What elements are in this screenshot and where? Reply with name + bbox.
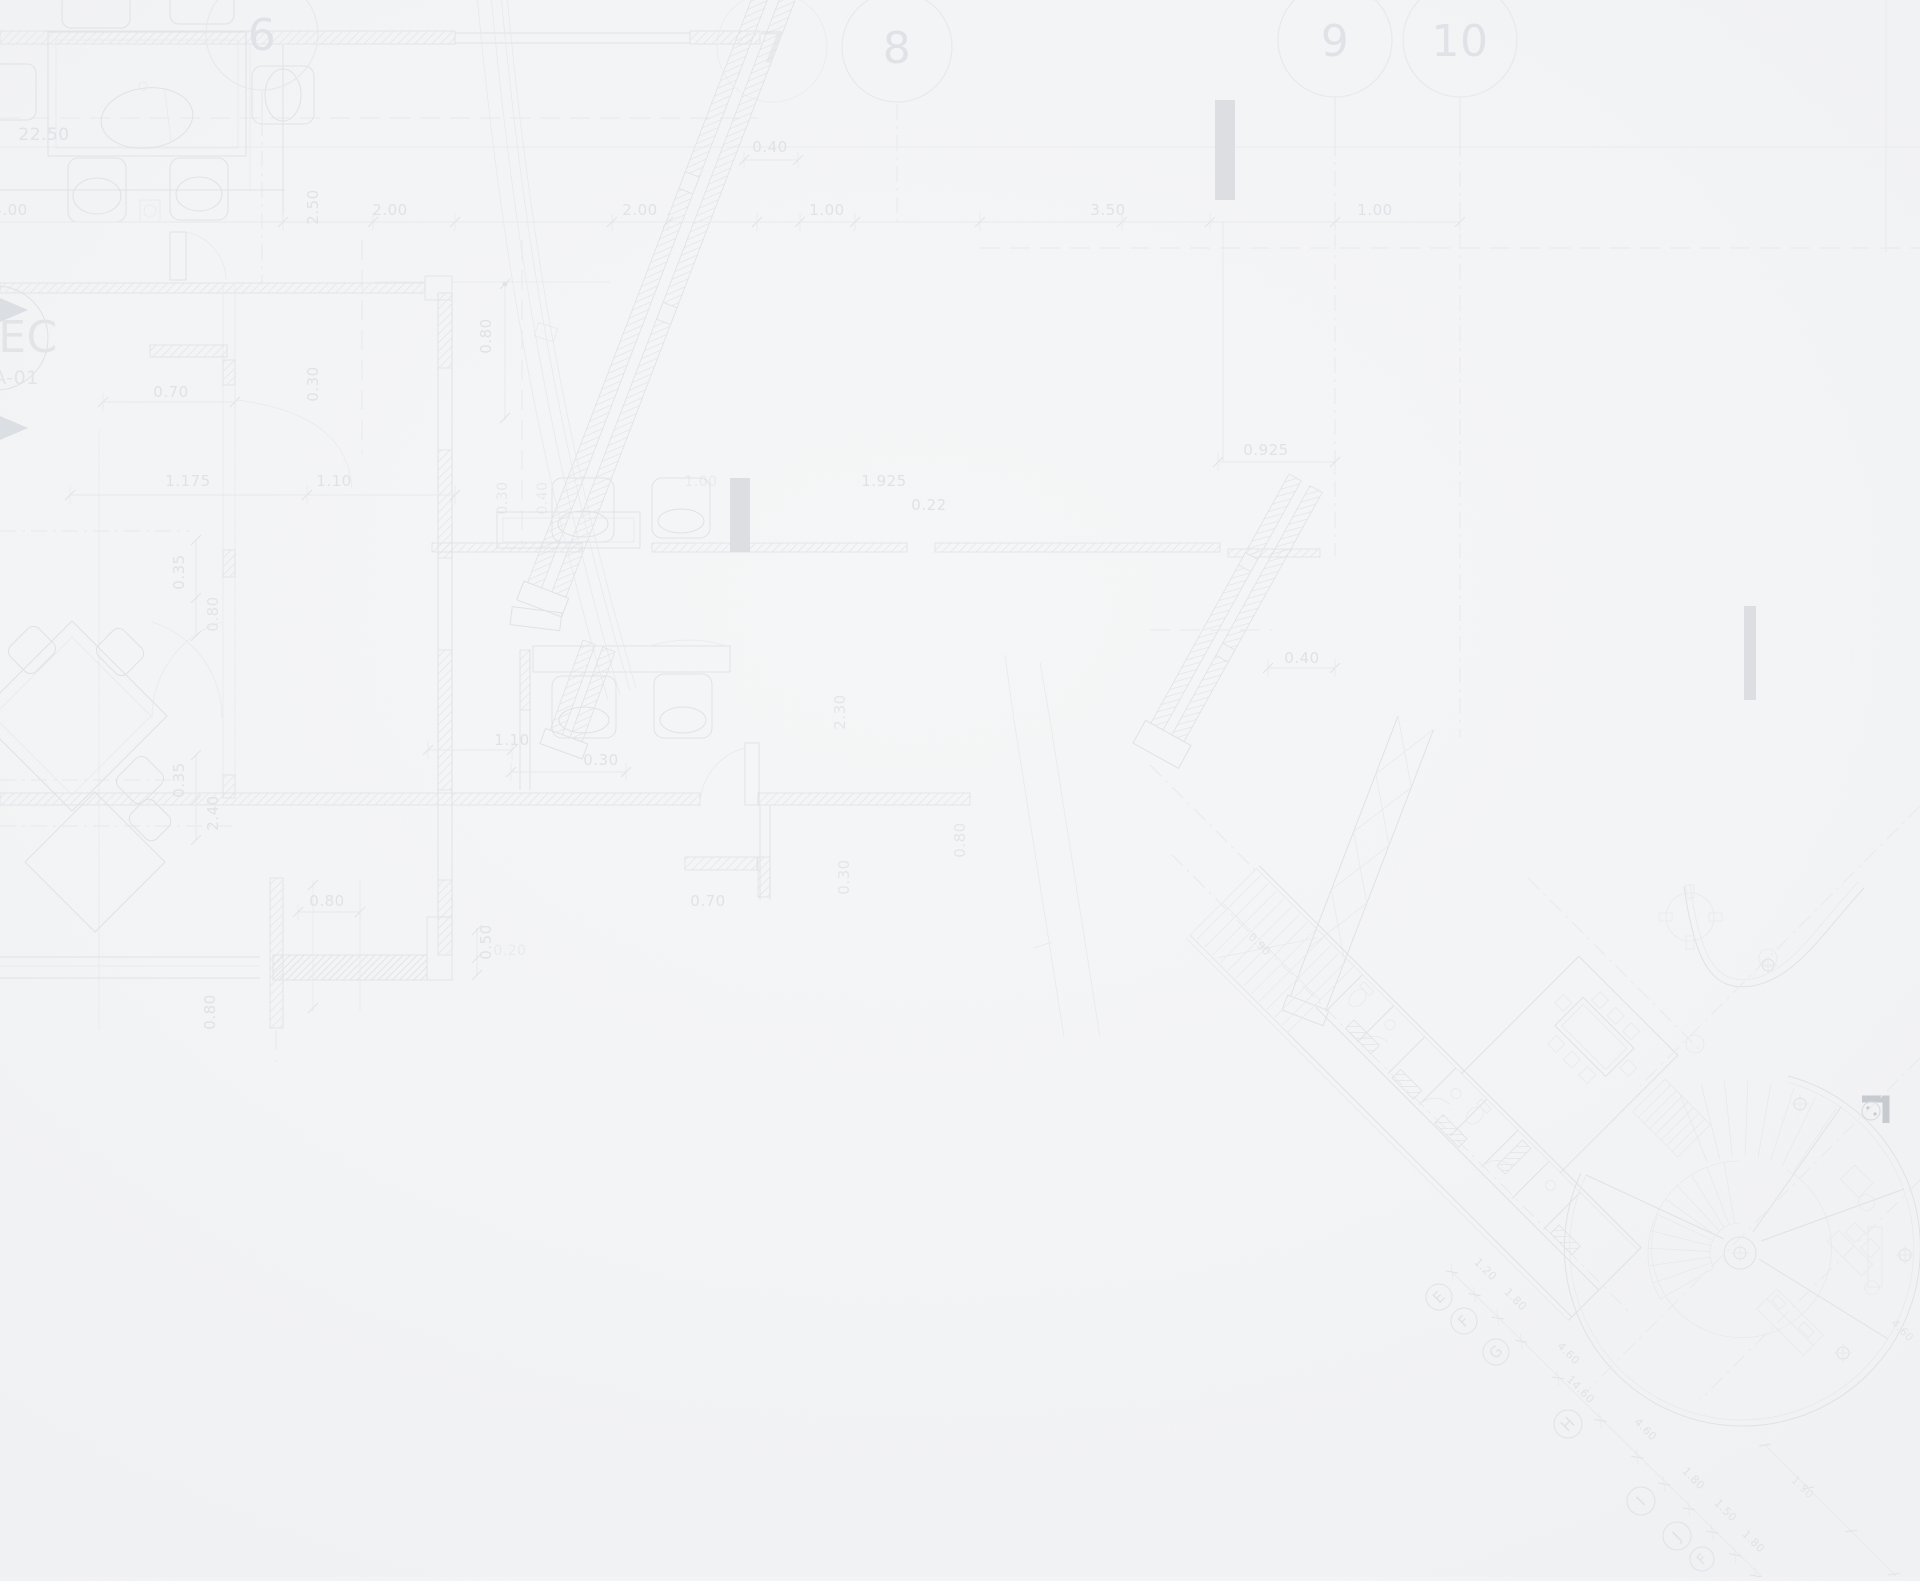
dimension-label: 0.40: [535, 481, 551, 514]
grid-bubble-diagonal: E: [1426, 1284, 1452, 1310]
dimension-label: 14.60: [1564, 1373, 1597, 1406]
grid-bubble-top: 8: [842, 0, 952, 102]
dimension-label: 0.40: [752, 138, 787, 156]
svg-text:9: 9: [1321, 16, 1350, 67]
grid-bubble-diagonal: J: [1663, 1522, 1691, 1550]
dimension-label: 0.80: [201, 994, 219, 1029]
dimension-label: 0.925: [1243, 441, 1288, 459]
svg-text:6: 6: [248, 10, 277, 61]
ramp-1-continuation: [1005, 655, 1100, 1037]
svg-text:H: H: [1557, 1413, 1579, 1435]
dimension-label: 4.60: [1555, 1340, 1583, 1368]
svg-text:F: F: [1694, 1551, 1711, 1568]
dimension-label: 1.20: [1472, 1256, 1500, 1284]
site-elements: [1528, 806, 1920, 1400]
grid-bubble-top: 6: [206, 0, 318, 90]
dimension-label: 22.50: [18, 125, 69, 145]
wing-fixtures: [1330, 982, 1563, 1215]
grid-bubbles: 678910EFGHIJF: [206, 0, 1714, 1571]
dimension-label: 0.80: [951, 822, 969, 857]
grid-drop-lines: [262, 90, 1460, 738]
dimension-label: 1.00: [809, 201, 844, 219]
svg-text:7: 7: [758, 23, 787, 74]
column-marker: [1834, 1344, 1852, 1362]
dimension-label: 0.80: [309, 892, 344, 910]
dimension-label: 0.30: [835, 859, 853, 894]
reference-lines: [0, 0, 1920, 1030]
section-marker-code: EC: [0, 312, 58, 363]
svg-text:F: F: [1454, 1311, 1473, 1330]
grid-bubble-diagonal: G: [1483, 1339, 1509, 1365]
grid-bubble-top: 9: [1278, 0, 1392, 97]
pavilion-seat: [1836, 1165, 1885, 1214]
dimension-label: 2.50: [304, 189, 322, 224]
grid-bubble-diagonal: I: [1627, 1487, 1655, 1515]
site-grid-diagonals: [1528, 806, 1920, 1400]
svg-text:E: E: [1429, 1287, 1449, 1307]
circular-pavilion: [1564, 1076, 1920, 1426]
dimension-label: 2.00: [372, 201, 407, 219]
dimension-label: 0.30: [304, 366, 322, 401]
dimension-label: 1.10: [316, 472, 351, 490]
ramp-hatched-3: [1133, 471, 1329, 768]
dimension-label: 1.80: [1680, 1465, 1708, 1493]
dimension-label: 0.35: [170, 554, 188, 589]
truss-3: [1282, 715, 1436, 1026]
wing-branch-dining: [1461, 956, 1677, 1172]
svg-text:10: 10: [1432, 16, 1489, 67]
dimension-label: 2.40: [204, 795, 222, 830]
section-marker-arrow-bottom: [0, 416, 28, 440]
column-marker: [1759, 956, 1777, 974]
svg-text:I: I: [1632, 1492, 1649, 1509]
dimension-label: 0.40: [1284, 649, 1319, 667]
dimension-label: 1.925: [861, 472, 906, 490]
dimension-label: 0.22: [911, 496, 946, 514]
dimension-label: 1.00: [684, 474, 717, 490]
dimension-label: 1.175: [165, 472, 210, 490]
svg-text:8: 8: [883, 23, 912, 74]
dimension-lines: [0, 160, 1897, 1577]
pavilion-kitchen: [1757, 1289, 1823, 1355]
grid-bubble-diagonal: F: [1451, 1308, 1477, 1334]
wall-layer: [0, 276, 1320, 1062]
office-suite-top-left: [0, 0, 760, 280]
dimension-label: 0.70: [153, 383, 188, 401]
dimension-label: 3.50: [1090, 201, 1125, 219]
dimension-label: 1.50: [1789, 1474, 1817, 1502]
dimension-labels: 22.504.002.502.002.001.003.501.000.400.7…: [0, 125, 1916, 1555]
diagonal-wing: [1137, 702, 1784, 1349]
dimension-label: 0.80: [477, 318, 495, 353]
pavilion-desk: [1822, 1218, 1901, 1297]
column-marker: [1731, 1244, 1749, 1262]
section-marker: EC A-01: [0, 286, 58, 440]
column-marker: [1791, 1095, 1809, 1113]
wing-stair-2: [1633, 1079, 1711, 1157]
dimension-label: 0.35: [170, 762, 188, 797]
dimension-label: 1.80: [1502, 1286, 1530, 1314]
dimension-label: 0.80: [204, 596, 222, 631]
grid-bubble-top: 10: [1403, 0, 1517, 97]
dimension-label: 2.30: [831, 694, 849, 729]
dimension-label: 2.00: [622, 201, 657, 219]
grid-bubble-diagonal: H: [1554, 1410, 1582, 1438]
dimension-label: 0.30: [495, 481, 511, 514]
procedural-decor: [65, 151, 1914, 1577]
svg-text:G: G: [1485, 1341, 1506, 1362]
dimension-label: 0.20: [493, 943, 526, 959]
dimension-label: 4.60: [1632, 1416, 1660, 1444]
dimension-label: 4.00: [0, 201, 28, 219]
dimension-label: 0.30: [583, 751, 618, 769]
section-marker-sheet: A-01: [0, 367, 39, 389]
column-marker: [1896, 1246, 1914, 1264]
dimension-label: 0.70: [690, 892, 725, 910]
tree-symbol: [1659, 885, 1722, 949]
dimension-label: 1.10: [494, 731, 529, 749]
blueprint-canvas: EC A-01: [0, 0, 1920, 1577]
dimension-label: 1.50: [1712, 1497, 1740, 1525]
dimension-label: 1.80: [1740, 1528, 1768, 1556]
dimension-label: 1.00: [1357, 201, 1392, 219]
diamond-tables: [0, 621, 174, 932]
grid-bubble-diagonal: F: [1690, 1547, 1714, 1571]
svg-text:J: J: [1668, 1527, 1686, 1545]
dimension-label: 0.50: [477, 924, 495, 959]
